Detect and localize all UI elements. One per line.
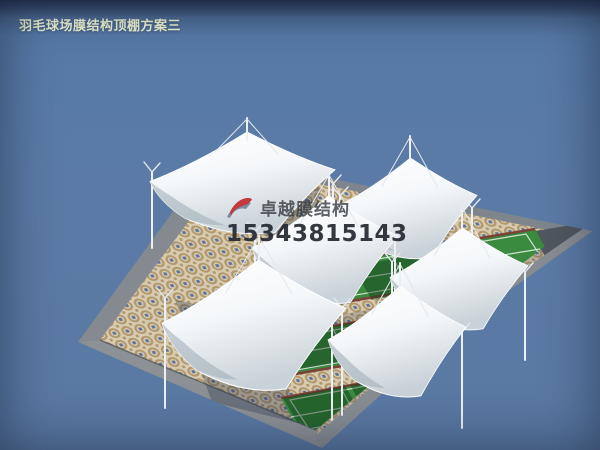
watermark-phone: 15343815143 xyxy=(226,221,408,247)
brand-name: 卓越膜结构 xyxy=(260,195,350,220)
page-title: 羽毛球场膜结构顶棚方案三 xyxy=(19,15,181,34)
render-viewport: 羽毛球场膜结构顶棚方案三 卓越膜结构 15343815143 xyxy=(0,0,600,450)
watermark: 卓越膜结构 15343815143 xyxy=(224,194,408,247)
brand-logo-icon xyxy=(224,194,254,220)
